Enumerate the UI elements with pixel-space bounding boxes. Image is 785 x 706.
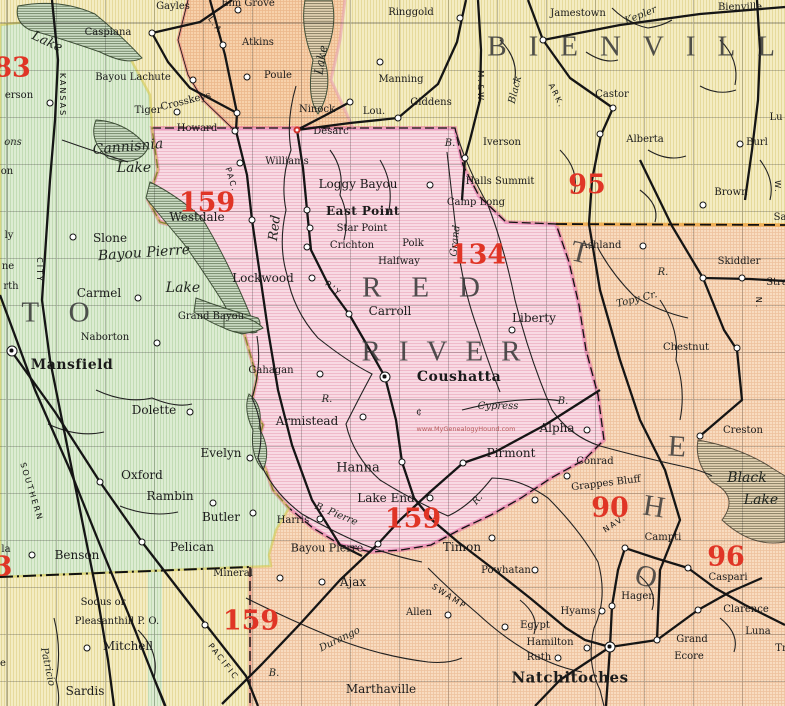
map-label: Lake — [30, 29, 64, 54]
town-marker — [294, 127, 301, 134]
town-marker — [700, 202, 707, 209]
map-label: B. — [445, 139, 456, 149]
map-label: Lake — [117, 161, 151, 175]
map-label: M.&W. — [476, 70, 484, 105]
town-marker — [532, 567, 539, 574]
town-marker — [232, 128, 239, 135]
map-label: Gayles — [156, 2, 190, 12]
parish-seat-marker — [380, 372, 391, 383]
map-label: RIVER — [362, 338, 539, 367]
map-label: Alberta — [626, 135, 664, 145]
map-label: Sa — [774, 213, 785, 223]
map-label: Clarence — [723, 605, 768, 615]
map-label: Allen — [406, 608, 432, 618]
map-label: H — [641, 490, 667, 523]
town-marker — [564, 473, 571, 480]
map-label: Skiddler — [718, 257, 761, 267]
map-label: Black — [727, 471, 766, 485]
town-marker — [685, 565, 692, 572]
town-marker — [317, 371, 324, 378]
map-label: Lockwood — [232, 272, 294, 284]
map-label: Slone — [93, 232, 127, 244]
map-label: Alpha — [539, 422, 574, 434]
map-label: Sardis — [66, 685, 105, 697]
map-label: Bayou Lachute — [95, 73, 171, 83]
map-label: SWAMP — [430, 583, 468, 611]
town-marker — [427, 495, 434, 502]
map-label: Ajax — [340, 576, 366, 588]
map-labels-layer: GaylesCaspianaBayou LachuteTigerCrosskey… — [0, 0, 785, 706]
map-canvas: GaylesCaspianaBayou LachuteTigerCrosskey… — [0, 0, 785, 706]
map-label: Hamilton — [526, 638, 573, 648]
map-label: Hanna — [336, 462, 380, 475]
map-label: Lake — [744, 493, 778, 507]
map-page-number: 96 — [707, 544, 745, 571]
map-label: Liberty — [512, 312, 556, 324]
map-label: East Point — [326, 205, 400, 217]
map-label: Castor — [595, 90, 629, 100]
map-label: ¢ — [416, 409, 422, 418]
map-label: Red — [267, 214, 283, 241]
town-marker — [250, 510, 257, 517]
town-marker — [445, 612, 452, 619]
map-label: Cannisnia — [92, 137, 164, 157]
map-label: erson — [5, 91, 33, 101]
town-marker — [739, 275, 746, 282]
map-label: R'Y — [323, 280, 342, 298]
map-label: Desarc — [313, 127, 348, 137]
map-page-number: 95 — [568, 172, 606, 199]
map-label: Coushatta — [417, 370, 501, 384]
map-label: Powhatan — [481, 566, 531, 576]
map-label: E — [667, 431, 687, 462]
town-marker — [154, 340, 161, 347]
map-label: Polk — [402, 239, 424, 249]
map-label: Rambin — [146, 490, 193, 502]
town-marker — [70, 234, 77, 241]
map-label: Lou. — [363, 107, 385, 117]
map-label: R. — [658, 268, 669, 278]
map-label: Lake — [166, 281, 200, 295]
map-label: Hyams — [561, 607, 596, 617]
map-label: Grand — [676, 635, 708, 645]
town-marker — [304, 207, 311, 214]
map-label: CITY — [35, 257, 43, 283]
town-marker — [555, 655, 562, 662]
map-label: R. — [471, 493, 486, 508]
map-label: Lu — [769, 113, 782, 123]
town-marker — [190, 77, 197, 84]
town-marker — [187, 409, 194, 416]
map-label: Williams — [265, 157, 308, 167]
map-label: ARK. — [547, 82, 566, 110]
town-marker — [247, 455, 254, 462]
map-label: Bayou Pierre — [291, 543, 364, 554]
map-label: Ninock — [299, 105, 335, 115]
map-label: Cypress — [478, 402, 519, 412]
town-marker — [734, 345, 741, 352]
map-label: Topy Cr. — [616, 290, 659, 310]
parish-seat-marker — [7, 346, 18, 357]
town-marker — [640, 243, 647, 250]
map-label: Harris — [277, 516, 310, 526]
map-label: BIENVILLE — [487, 33, 785, 62]
town-marker — [427, 182, 434, 189]
map-page-number: 3 — [0, 554, 12, 581]
map-label: Tiger — [135, 106, 162, 116]
town-marker — [610, 105, 617, 112]
map-label: Carroll — [369, 305, 412, 317]
map-label: Star Point — [337, 224, 388, 234]
map-label: Natchitoches — [511, 671, 628, 686]
town-marker — [489, 535, 496, 542]
map-label: Lake — [313, 44, 330, 75]
map-label: B. — [558, 397, 569, 407]
map-label: Crichton — [330, 241, 374, 251]
town-marker — [360, 414, 367, 421]
parish-seat-marker — [605, 642, 616, 653]
town-marker — [84, 645, 91, 652]
map-label: SOUTHERN — [18, 462, 43, 522]
map-label: on — [1, 167, 13, 177]
town-marker — [29, 552, 36, 559]
town-marker — [244, 74, 251, 81]
map-label: ne — [2, 262, 14, 272]
map-label: Pleasanthill P. O. — [75, 617, 159, 627]
map-label: Bayou Pierre — [97, 243, 190, 263]
map-label: Mansfield — [31, 358, 113, 372]
town-marker — [97, 479, 104, 486]
map-label: Ecore — [674, 652, 704, 662]
town-marker — [700, 275, 707, 282]
town-marker — [220, 42, 227, 49]
town-marker — [584, 645, 591, 652]
map-label: Caspiana — [85, 28, 132, 38]
town-marker — [462, 155, 469, 162]
map-label: Patricio — [38, 647, 56, 687]
map-label: Pirmont — [487, 447, 536, 459]
map-label: Sodus or — [81, 598, 126, 608]
town-marker — [622, 545, 629, 552]
map-label: Burl — [746, 138, 768, 148]
map-label: Conrad — [576, 457, 613, 467]
map-label: L.A. — [206, 15, 226, 38]
map-label: Mitchell — [103, 640, 153, 652]
town-marker — [399, 459, 406, 466]
town-marker — [540, 37, 547, 44]
town-marker — [584, 427, 591, 434]
town-marker — [375, 541, 382, 548]
map-label: Creston — [723, 426, 763, 436]
map-label: Stra — [766, 278, 785, 288]
town-marker — [210, 500, 217, 507]
map-label: Halls Summit — [466, 177, 535, 187]
map-label: Lake End — [357, 492, 414, 504]
map-label: Howard — [177, 124, 217, 134]
town-marker — [234, 110, 241, 117]
map-label: rth — [3, 282, 18, 292]
map-label: ons — [4, 138, 22, 148]
map-label: Gahagan — [248, 366, 293, 376]
map-label: Naborton — [81, 333, 129, 343]
map-label: Mineral — [213, 569, 253, 579]
map-label: Iverson — [483, 138, 521, 148]
town-marker — [319, 579, 326, 586]
town-marker — [149, 30, 156, 37]
map-label: www.MyGenealogyHound.com — [417, 426, 516, 433]
town-marker — [174, 109, 181, 116]
map-label: Egypt — [520, 621, 550, 631]
town-marker — [597, 131, 604, 138]
map-label: e — [0, 659, 6, 669]
town-marker — [737, 141, 744, 148]
map-label: Butler — [202, 511, 240, 523]
map-label: N. — [754, 297, 762, 310]
map-label: Grappes Bluff — [571, 475, 642, 493]
town-marker — [502, 624, 509, 631]
map-page-number: 159 — [385, 506, 441, 533]
town-marker — [457, 15, 464, 22]
town-marker — [235, 7, 242, 14]
map-label: Halfway — [378, 257, 420, 267]
map-label: Durango — [318, 626, 362, 654]
map-label: Timon — [443, 541, 481, 553]
map-label: Dolette — [132, 404, 177, 416]
town-marker — [346, 311, 353, 318]
map-page-number: 159 — [179, 190, 235, 217]
town-marker — [697, 433, 704, 440]
map-label: Black — [508, 75, 525, 105]
map-page-number: 159 — [223, 608, 279, 635]
map-label: Marthaville — [346, 683, 416, 695]
town-marker — [202, 622, 209, 629]
map-label: Brown — [714, 188, 747, 198]
map-label: PACIFIC — [206, 642, 239, 682]
map-label: W. — [773, 180, 781, 194]
map-label: Caspari — [708, 573, 747, 583]
map-label: O — [632, 560, 660, 594]
map-label: Manning — [378, 75, 423, 85]
map-label: Armistead — [276, 415, 339, 427]
town-marker — [654, 637, 661, 644]
map-label: Bienville — [718, 3, 762, 13]
map-label: OTO — [0, 299, 120, 328]
town-marker — [309, 275, 316, 282]
map-label: Kepler — [624, 5, 659, 27]
town-marker — [47, 100, 54, 107]
map-label: B. — [269, 669, 280, 679]
town-marker — [460, 460, 467, 467]
map-label: Camp Long — [447, 198, 505, 208]
map-label: Crosskeys — [160, 91, 212, 113]
map-label: Luna — [745, 627, 770, 637]
map-label: Ringgold — [388, 8, 434, 18]
map-label: Evelyn — [201, 447, 242, 459]
town-marker — [609, 603, 616, 610]
map-label: Ruth — [527, 653, 551, 663]
map-label: Poule — [264, 71, 292, 81]
map-label: Oxford — [121, 469, 163, 481]
map-label: Jamestown — [550, 9, 606, 19]
map-label: T — [567, 236, 592, 270]
town-marker — [304, 244, 311, 251]
map-label: Atkins — [242, 38, 274, 48]
map-label: Campti — [645, 533, 682, 543]
map-label: Benson — [55, 549, 100, 561]
town-marker — [135, 295, 142, 302]
town-marker — [599, 608, 606, 615]
town-marker — [695, 607, 702, 614]
map-label: KANSAS — [58, 73, 66, 117]
map-label: ly — [5, 231, 14, 241]
town-marker — [532, 497, 539, 504]
map-label: RED — [362, 274, 510, 303]
town-marker — [307, 225, 314, 232]
town-marker — [347, 99, 354, 106]
map-label: R. — [322, 395, 333, 405]
map-label: Tr — [775, 644, 785, 654]
map-label: Loggy Bayou — [319, 178, 398, 190]
town-marker — [139, 539, 146, 546]
map-label: Grand Bayou — [178, 312, 244, 322]
map-page-number: 83 — [0, 55, 31, 82]
town-marker — [277, 575, 284, 582]
town-marker — [237, 160, 244, 167]
map-label: Pelican — [170, 541, 214, 553]
map-label: Chestnut — [663, 343, 709, 353]
map-label: Giddens — [410, 98, 451, 108]
town-marker — [395, 115, 402, 122]
town-marker — [317, 516, 324, 523]
town-marker — [509, 327, 516, 334]
town-marker — [377, 59, 384, 66]
map-label: Elm Grove — [221, 0, 275, 9]
town-marker — [249, 217, 256, 224]
